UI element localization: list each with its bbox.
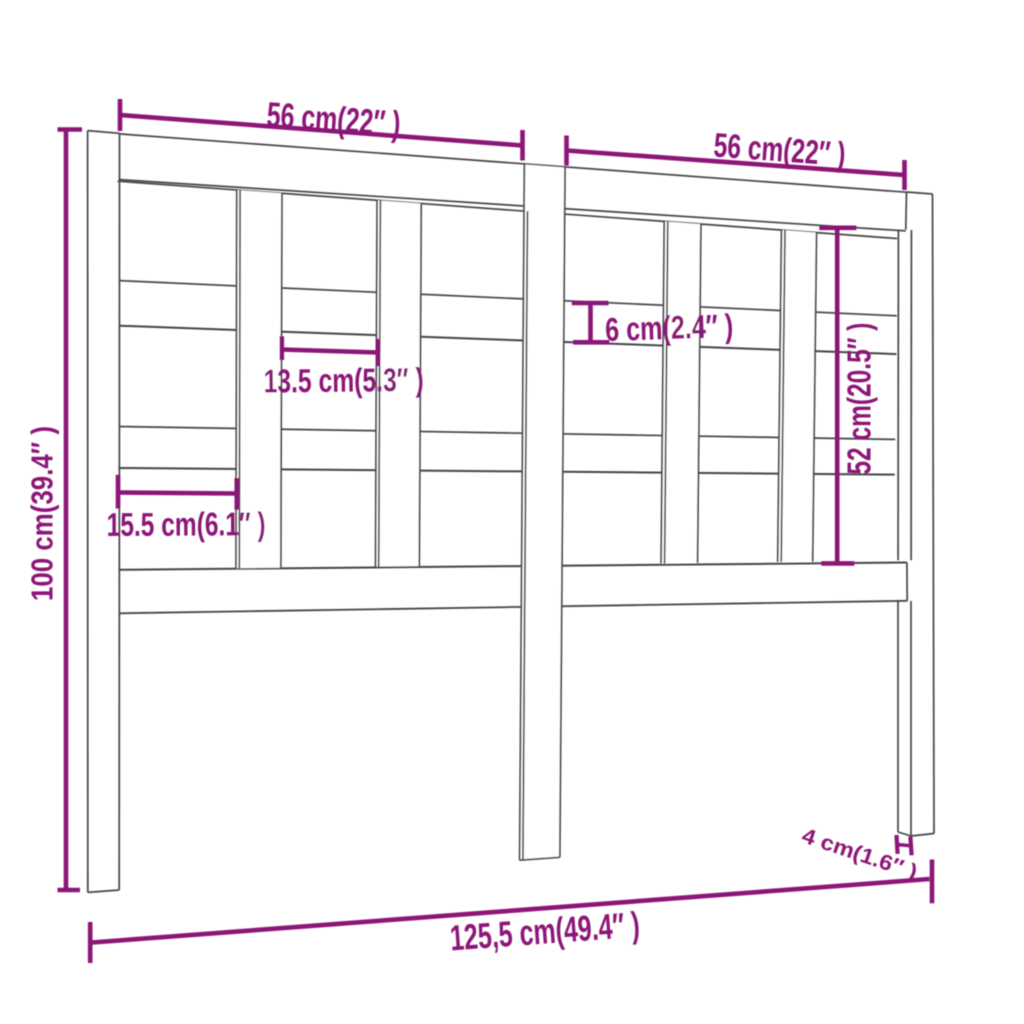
svg-text:52 cm(20.5″ ): 52 cm(20.5″ ) xyxy=(841,323,878,475)
svg-text:6 cm(2.4″ ): 6 cm(2.4″ ) xyxy=(605,307,734,348)
svg-text:13.5 cm(5.3″ ): 13.5 cm(5.3″ ) xyxy=(263,361,423,400)
svg-text:100 cm(39.4″ ): 100 cm(39.4″ ) xyxy=(26,426,60,601)
svg-text:15.5 cm(6.1″ ): 15.5 cm(6.1″ ) xyxy=(107,505,266,543)
